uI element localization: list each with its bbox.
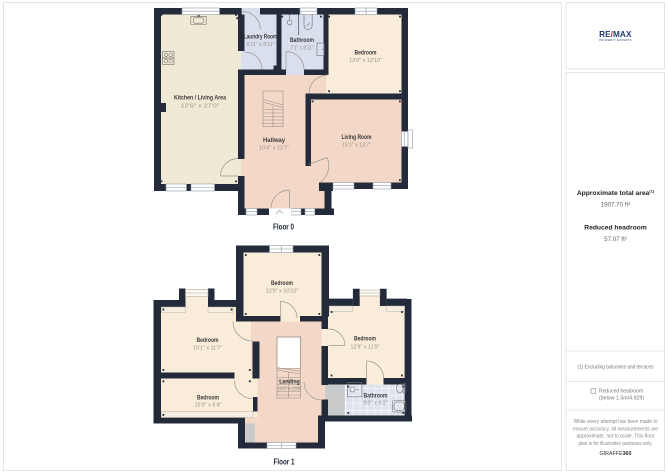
svg-text:plan is for illustrative purpo: plan is for illustrative purposes only. <box>579 441 653 447</box>
svg-text:Bedroom: Bedroom <box>271 280 293 287</box>
svg-text:While every attempt has been m: While every attempt has been made to <box>574 419 658 425</box>
svg-text:9'8" x 6'2": 9'8" x 6'2" <box>363 401 388 407</box>
svg-text:(below 1.5m/4.92ft): (below 1.5m/4.92ft) <box>599 395 644 401</box>
svg-text:15'3" x 6'4": 15'3" x 6'4" <box>195 403 222 409</box>
svg-text:Kitchen / Living Area: Kitchen / Living Area <box>174 95 226 102</box>
svg-text:12'6" x 27'0": 12'6" x 27'0" <box>181 104 220 110</box>
svg-text:Reduced headroom: Reduced headroom <box>599 389 643 395</box>
svg-text:ensure accuracy, all measureme: ensure accuracy, all measurements are <box>573 426 658 432</box>
svg-text:Bedroom: Bedroom <box>355 50 377 57</box>
svg-text:10'4" x 21'7": 10'4" x 21'7" <box>259 146 289 152</box>
svg-text:(1) Excluding balconies and te: (1) Excluding balconies and terraces <box>578 365 654 371</box>
svg-text:15'1" x 11'7": 15'1" x 11'7" <box>193 345 222 351</box>
svg-text:Living Room: Living Room <box>342 134 372 141</box>
svg-text:Floor 0: Floor 0 <box>273 223 295 232</box>
svg-text:12'9" x 11'9": 12'9" x 11'9" <box>351 344 380 350</box>
svg-text:10'0" x 13'8": 10'0" x 13'8" <box>277 387 302 393</box>
svg-text:GIRAFFE360: GIRAFFE360 <box>600 451 633 457</box>
svg-text:Bathroom: Bathroom <box>364 393 388 400</box>
svg-text:Laundry Room: Laundry Room <box>244 34 278 41</box>
svg-text:7'1" x 8'11": 7'1" x 8'11" <box>291 45 314 51</box>
svg-text:Approximate total area(1): Approximate total area(1) <box>577 188 655 197</box>
svg-text:57.07 ft²: 57.07 ft² <box>604 236 627 243</box>
svg-text:RE/MAX: RE/MAX <box>599 30 632 39</box>
svg-text:Bathroom: Bathroom <box>290 37 314 44</box>
svg-text:approximate, not to scale. Thi: approximate, not to scale. This floor <box>577 434 655 440</box>
svg-text:12'8" x 10'10": 12'8" x 10'10" <box>266 289 299 295</box>
svg-text:5'11" x 8'11": 5'11" x 8'11" <box>247 42 275 48</box>
svg-text:Hallway: Hallway <box>263 137 286 144</box>
svg-text:Floor 1: Floor 1 <box>274 458 296 467</box>
svg-text:Bedroom: Bedroom <box>197 337 219 344</box>
svg-text:Reduced headroom: Reduced headroom <box>584 225 646 232</box>
svg-text:Bedroom: Bedroom <box>197 395 219 402</box>
svg-text:PROPERTY EXPERTS: PROPERTY EXPERTS <box>599 38 632 42</box>
svg-text:Landing: Landing <box>279 379 300 386</box>
svg-text:12'0" x 12'10": 12'0" x 12'10" <box>349 58 382 64</box>
svg-text:15'1" x 13'7": 15'1" x 13'7" <box>342 143 371 149</box>
svg-text:Bedroom: Bedroom <box>354 336 376 343</box>
svg-text:1907.70 ft²: 1907.70 ft² <box>601 202 631 209</box>
